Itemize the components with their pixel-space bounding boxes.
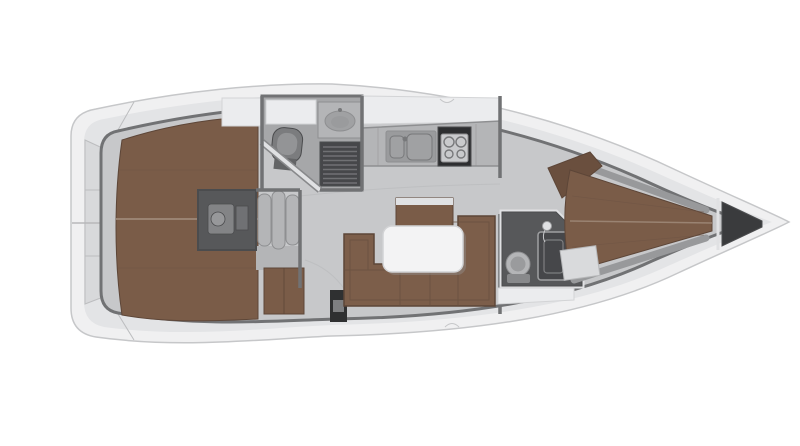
floorplan-svg: Sailing yacht interior layout — deck pla… (0, 0, 800, 446)
aft-head-faucet (338, 108, 342, 112)
companionway-step-1 (258, 194, 271, 246)
fwd-head-toilet-tank (507, 274, 530, 283)
shower-head (543, 222, 552, 231)
galley-sink-small (390, 136, 404, 158)
aft-head-shower-grate (320, 142, 360, 186)
fwd-cabin-seat (560, 246, 600, 281)
companionway-step-3 (286, 195, 299, 245)
aft-head-basin-inner (331, 116, 349, 128)
galley-cabinet-band (362, 96, 500, 124)
aft-cabin-locker (222, 98, 262, 126)
companionway-step-2 (272, 191, 285, 249)
galley-faucet (403, 137, 408, 142)
galley-sink-large (407, 134, 432, 160)
engine-manifold (236, 206, 248, 230)
salon-table (383, 226, 463, 272)
salon-sideboard-top (396, 198, 453, 205)
aft-head-cabinet (266, 100, 316, 124)
companionway-corridor (256, 246, 300, 270)
engine-pulley (211, 212, 225, 226)
mast-post-panel (333, 300, 344, 312)
galley: Galley: double sink and stove (362, 96, 500, 166)
fwd-head-toilet-seat (511, 257, 526, 272)
boat-floorplan: Sailing yacht interior layout — deck pla… (0, 0, 800, 446)
